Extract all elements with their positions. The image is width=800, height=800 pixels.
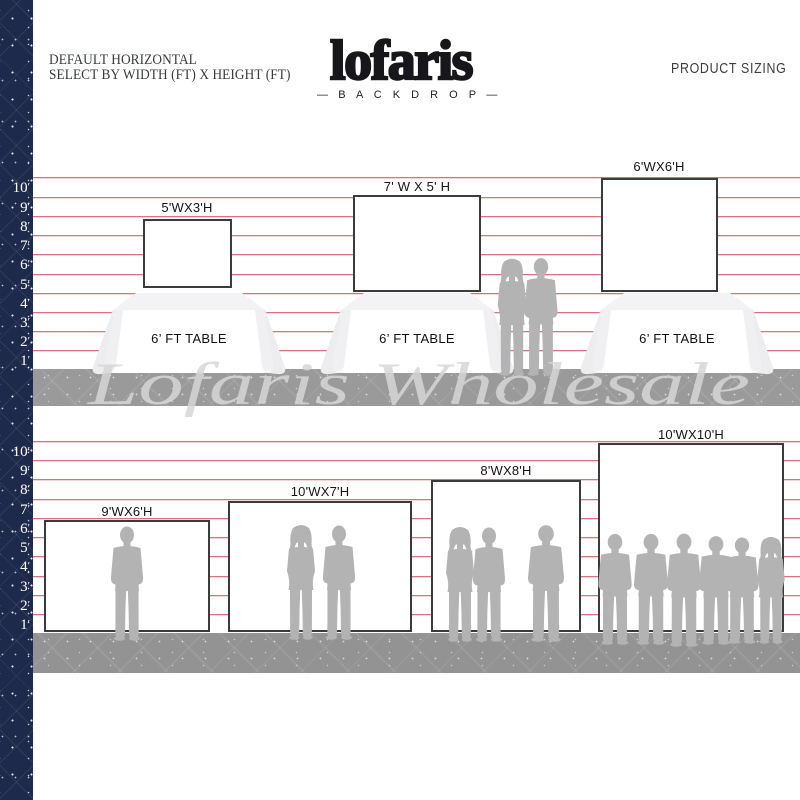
svg-text:Lofaris Wholesale: Lofaris Wholesale <box>86 351 750 417</box>
